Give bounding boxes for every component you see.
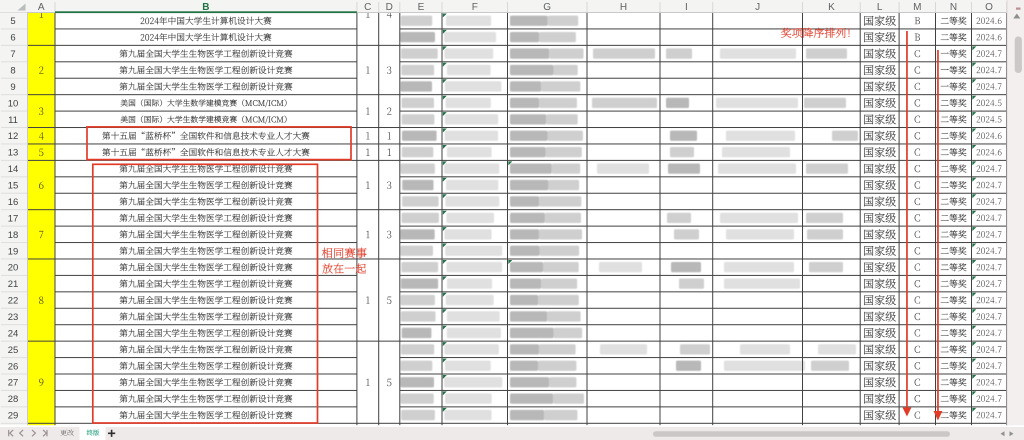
svg-text:12: 12 [8,131,19,142]
svg-text:9: 9 [10,82,15,93]
svg-text:7: 7 [10,49,15,60]
svg-text:17: 17 [8,213,19,224]
svg-text:25: 25 [8,345,19,356]
svg-text:C: C [364,2,371,13]
svg-text:A: A [38,2,45,13]
svg-text:G: G [543,2,551,13]
svg-text:22: 22 [8,296,19,307]
svg-text:27: 27 [8,378,19,389]
svg-text:L: L [877,2,883,13]
svg-text:16: 16 [8,197,19,208]
svg-text:23: 23 [8,312,19,323]
svg-text:D: D [386,2,393,13]
svg-text:10: 10 [8,98,19,109]
svg-text:N: N [950,2,957,13]
svg-text:E: E [418,2,425,13]
svg-text:6: 6 [10,33,15,44]
svg-text:24: 24 [8,328,19,339]
svg-text:O: O [985,2,993,13]
svg-text:I: I [685,2,688,13]
svg-text:29: 29 [8,411,19,422]
svg-text:H: H [620,2,627,13]
svg-text:5: 5 [10,16,15,27]
svg-text:8: 8 [10,66,15,77]
svg-text:21: 21 [8,279,19,290]
svg-text:M: M [913,2,921,13]
svg-text:K: K [828,2,835,13]
svg-text:J: J [755,2,760,13]
svg-text:28: 28 [8,394,19,405]
svg-text:13: 13 [8,148,19,159]
svg-text:14: 14 [8,164,19,175]
svg-text:15: 15 [8,181,19,192]
svg-text:18: 18 [8,230,19,241]
svg-text:26: 26 [8,361,19,372]
svg-text:19: 19 [8,246,19,257]
svg-text:F: F [472,2,478,13]
svg-text:11: 11 [8,115,18,126]
svg-text:20: 20 [8,263,19,274]
